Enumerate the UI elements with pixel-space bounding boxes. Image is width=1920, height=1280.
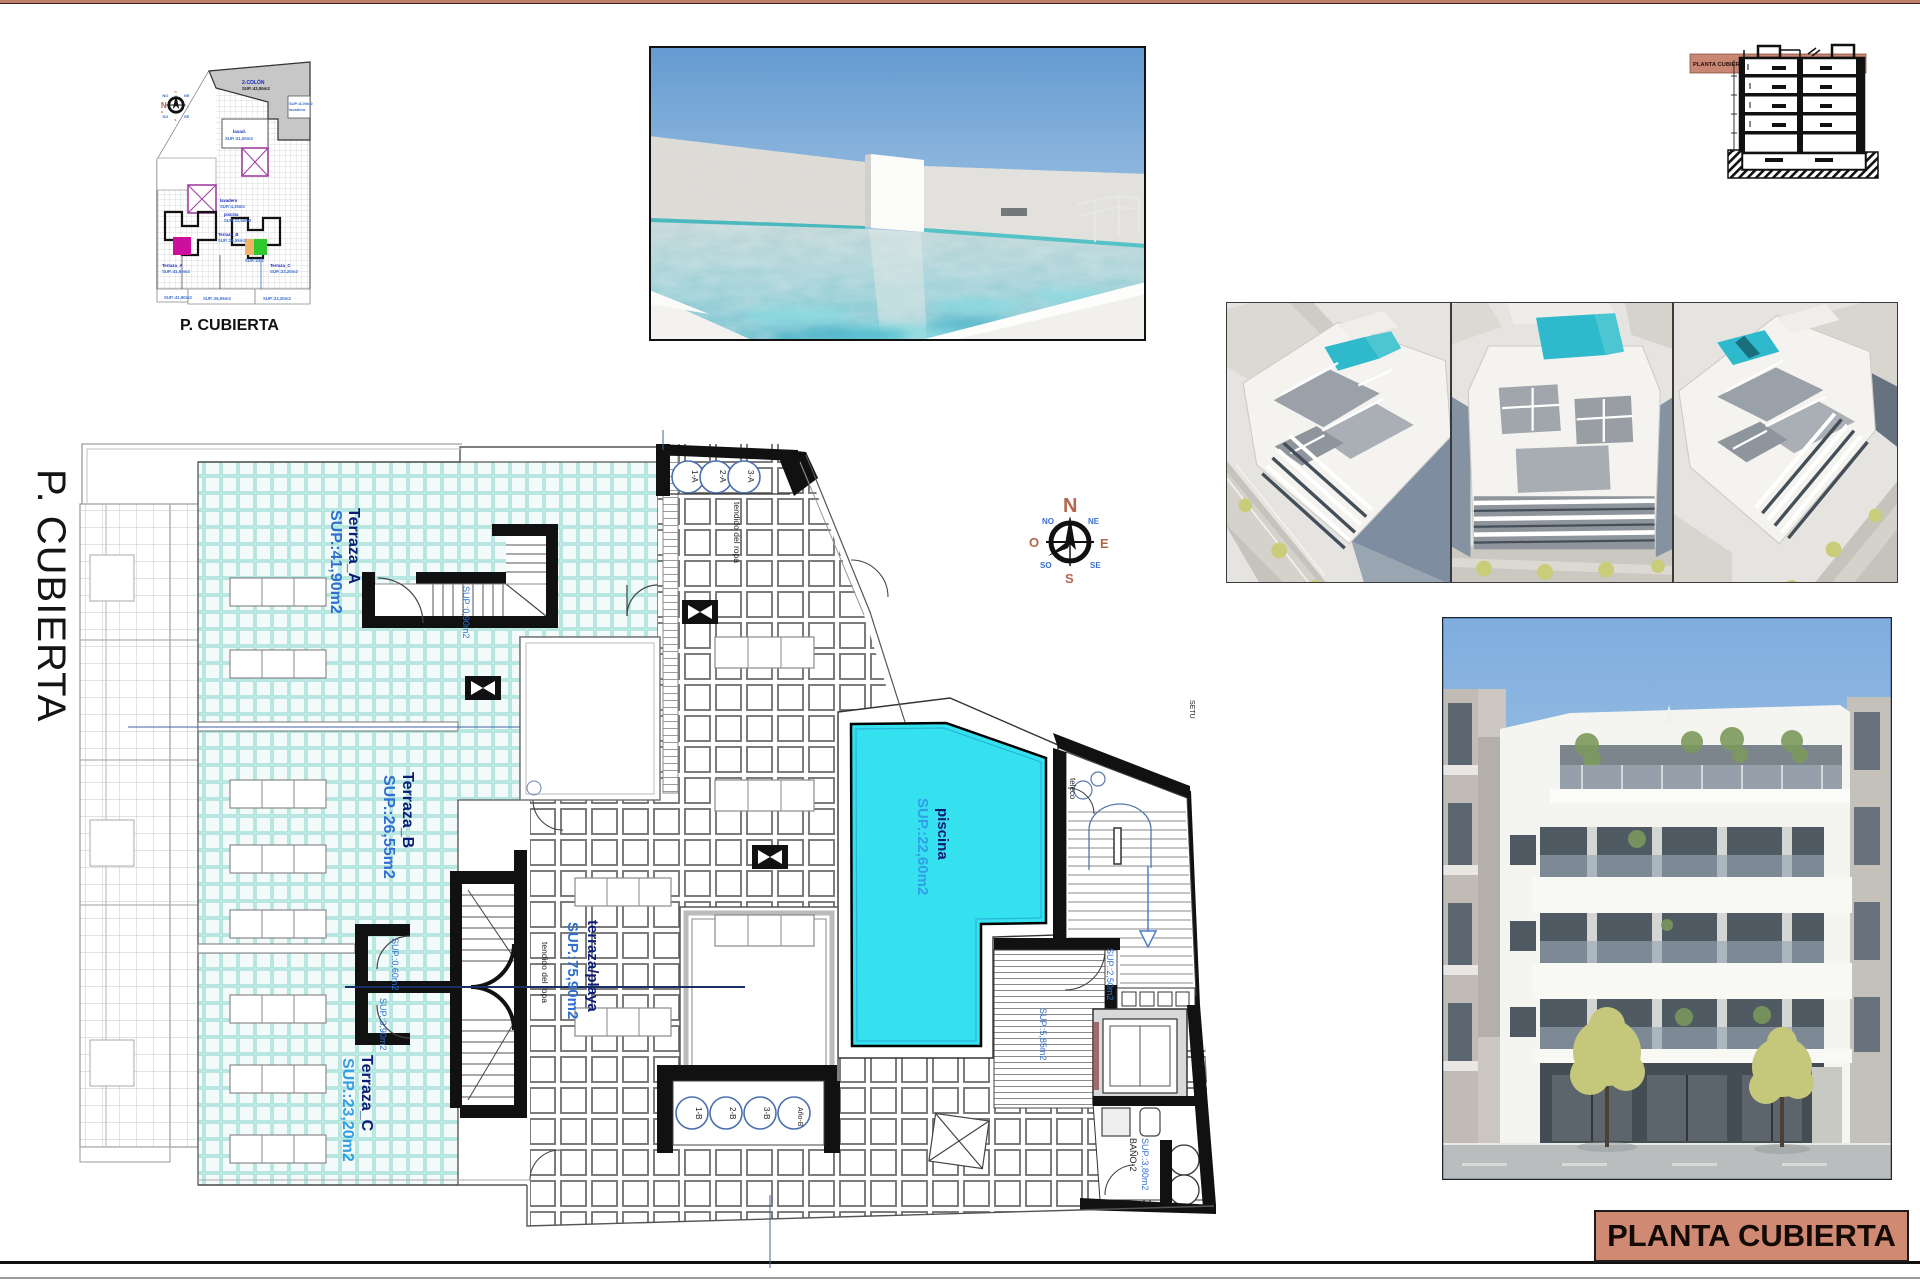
svg-text:SUP.:0,60m2: SUP.:0,60m2 — [390, 938, 400, 990]
svg-text:SUP.:75,90m2: SUP.:75,90m2 — [564, 922, 581, 1019]
svg-text:N: N — [1063, 495, 1077, 517]
svg-text:s: s — [174, 118, 176, 122]
svg-text:e: e — [187, 104, 189, 108]
svg-text:BAÑO-2: BAÑO-2 — [1128, 1138, 1138, 1172]
svg-text:Año-B: Año-B — [796, 1107, 803, 1127]
svg-text:SUP.:23,2: SUP.:23,2 — [245, 258, 264, 263]
svg-text:SUP.:2,50m2: SUP.:2,50m2 — [1105, 948, 1115, 1000]
svg-text:O: O — [1029, 535, 1039, 550]
svg-text:SUP.:23,20m2: SUP.:23,20m2 — [263, 296, 291, 301]
svg-text:SUP.:26,55m2: SUP.:26,55m2 — [203, 296, 231, 301]
svg-text:NE: NE — [184, 93, 190, 98]
svg-text:3-B: 3-B — [762, 1107, 771, 1119]
svg-text:1-A: 1-A — [690, 470, 699, 483]
svg-text:tendido del ropa: tendido del ropa — [540, 942, 550, 1003]
svg-text:n: n — [174, 90, 177, 94]
svg-text:Terraza_A: Terraza_A — [345, 508, 362, 585]
svg-text:SUP.:3,80m2: SUP.:3,80m2 — [1140, 1138, 1150, 1190]
svg-text:SUP.:26,55m2: SUP.:26,55m2 — [380, 775, 397, 879]
svg-text:SUP.:43,55m2: SUP.:43,55m2 — [242, 86, 270, 91]
svg-text:2-COLÓN: 2-COLÓN — [242, 78, 265, 86]
svg-text:Terraza_C: Terraza_C — [358, 1055, 375, 1132]
svg-text:terraza/playa: terraza/playa — [584, 920, 601, 1012]
svg-text:SUP.:3,90m2: SUP.:3,90m2 — [378, 998, 388, 1050]
svg-text:SUP.:8,00m2: SUP.:8,00m2 — [289, 101, 313, 106]
svg-text:1-B: 1-B — [694, 1107, 703, 1119]
svg-text:2-B: 2-B — [728, 1107, 737, 1119]
svg-text:Terraza_B: Terraza_B — [399, 772, 416, 848]
svg-text:teleco: teleco — [1068, 778, 1077, 800]
svg-text:S: S — [1065, 571, 1074, 586]
svg-text:SUP.:23,20m2: SUP.:23,20m2 — [339, 1058, 356, 1162]
svg-text:SUP.:41,90m2: SUP.:41,90m2 — [327, 510, 344, 614]
svg-text:SE: SE — [184, 114, 190, 119]
svg-text:SUP.:22,60m2: SUP.:22,60m2 — [914, 798, 931, 895]
svg-text:lavadero: lavadero — [289, 107, 306, 112]
svg-text:E: E — [1100, 536, 1109, 551]
svg-text:lavadero: lavadero — [220, 198, 238, 203]
svg-text:SUP.:41,90m2: SUP.:41,90m2 — [162, 269, 190, 274]
svg-text:3-A: 3-A — [746, 470, 755, 483]
svg-text:NE: NE — [1088, 517, 1100, 526]
svg-text:Terraza_B: Terraza_B — [218, 232, 238, 237]
svg-text:SO: SO — [1040, 561, 1052, 570]
svg-text:Terraza_C: Terraza_C — [270, 263, 290, 268]
svg-text:SUP.:26,55m2: SUP.:26,55m2 — [218, 238, 246, 243]
svg-text:P. CUBIERTA: P. CUBIERTA — [180, 317, 279, 334]
svg-text:NO: NO — [1042, 517, 1054, 526]
svg-text:SO: SO — [162, 114, 168, 119]
svg-text:SUP.:5,85m2: SUP.:5,85m2 — [1038, 1008, 1048, 1060]
svg-text:piscina: piscina — [934, 808, 951, 860]
svg-text:SETU: SETU — [1188, 700, 1195, 719]
svg-text:lavad.: lavad. — [233, 129, 246, 134]
svg-text:Terraza_A: Terraza_A — [162, 263, 182, 268]
svg-text:N: N — [161, 101, 167, 110]
svg-text:SUP.:41,90m2: SUP.:41,90m2 — [164, 295, 192, 300]
svg-text:SUP.:0,90m2: SUP.:0,90m2 — [461, 586, 471, 638]
svg-text:SE: SE — [1090, 561, 1101, 570]
svg-text:SUP.:21,00m2: SUP.:21,00m2 — [225, 136, 253, 141]
svg-text:NO: NO — [162, 93, 168, 98]
svg-text:tendido del ropa: tendido del ropa — [732, 502, 742, 563]
svg-text:piscina: piscina — [224, 212, 239, 217]
svg-text:SUP.:4,35m2: SUP.:4,35m2 — [220, 204, 246, 209]
svg-text:SUP.:22,60m2: SUP.:22,60m2 — [224, 218, 252, 223]
svg-text:2-A: 2-A — [718, 470, 727, 483]
svg-text:SUP.:23,20m2: SUP.:23,20m2 — [270, 269, 298, 274]
